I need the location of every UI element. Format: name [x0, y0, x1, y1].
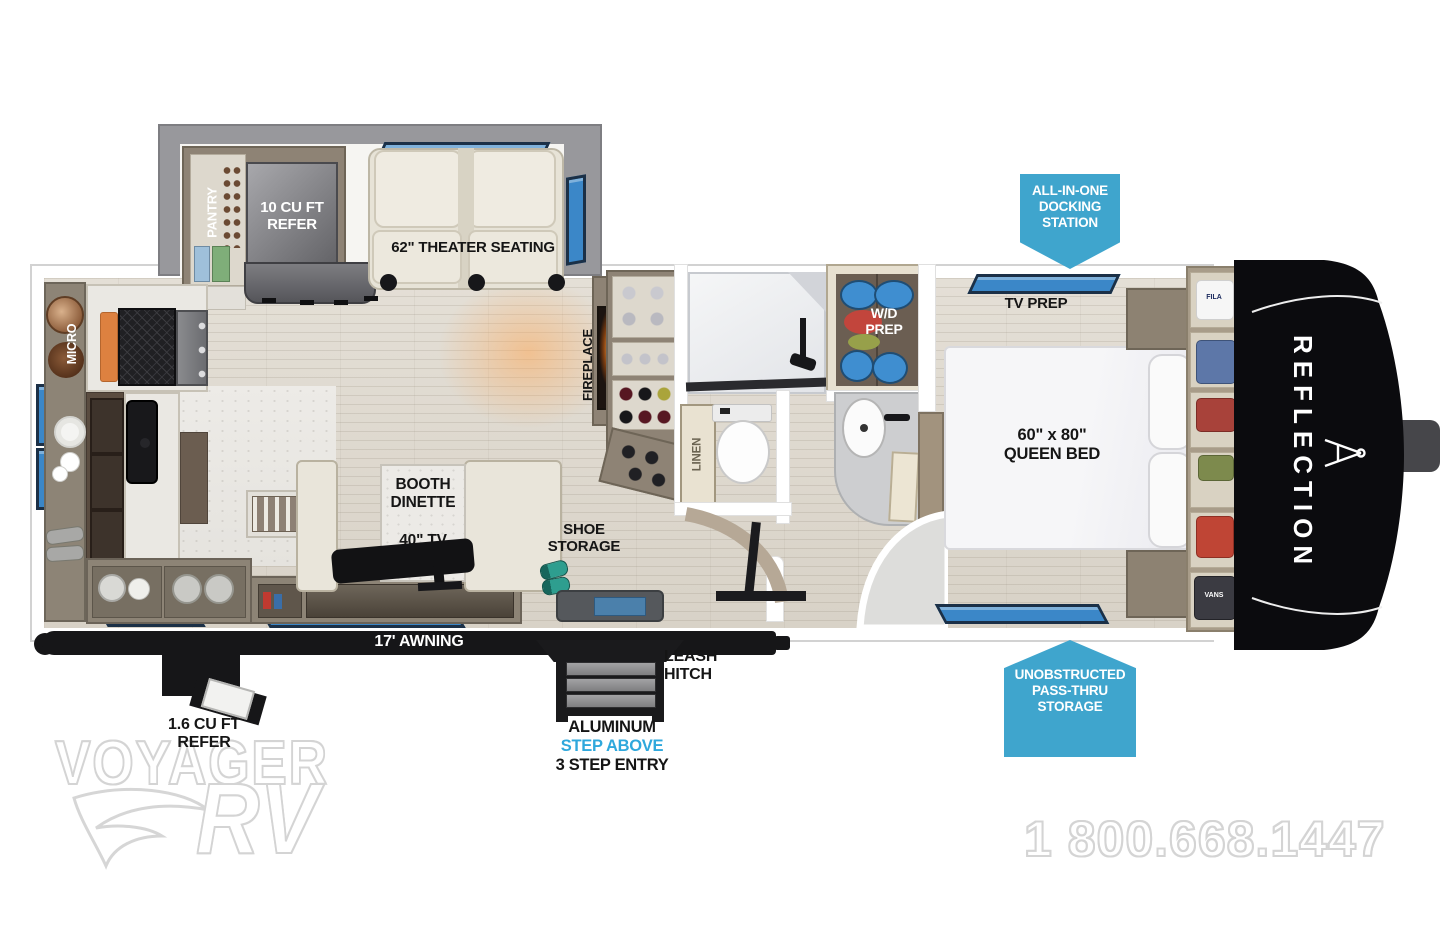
drawer-handle-3	[334, 300, 348, 305]
entry-door-mat-center	[594, 597, 646, 616]
plate-stack	[54, 416, 86, 448]
kitchen-faucet-icon	[140, 438, 150, 448]
theater-seat-back-right	[468, 150, 556, 228]
step-entry-label: 3 STEP ENTRY	[538, 756, 686, 776]
bottle-red	[263, 592, 271, 609]
bath-faucet-icon	[884, 414, 910, 421]
cabinet-door-2	[90, 454, 124, 510]
bedroom-step	[848, 510, 948, 630]
toilet	[716, 420, 770, 484]
booth-dinette-label: BOOTH DINETTE	[381, 476, 465, 520]
refrigerator-label: 10 CU FT REFER	[248, 200, 336, 240]
pantry-jars	[222, 164, 242, 248]
stemware-shelf	[612, 276, 676, 338]
exterior-refer-label: 1.6 CU FT REFER	[148, 716, 260, 756]
stove-cooktop	[118, 308, 176, 386]
laundry-blue-2	[872, 352, 908, 384]
laundry-blue	[840, 350, 874, 382]
pass-thru-storage-badge: UNOBSTRUCTED PASS-THRU STORAGE	[1004, 640, 1136, 757]
bowl-2	[52, 466, 68, 482]
step-tread-2	[566, 678, 656, 692]
exterior-refrigerator	[201, 678, 255, 720]
bottle-blue	[274, 594, 282, 609]
cabinet-door-1	[90, 398, 124, 454]
docking-station-badge: ALL-IN-ONE DOCKING STATION	[1020, 174, 1120, 269]
wd-prep-label: W/D PREP	[846, 306, 922, 344]
theater-seating-label: 62" THEATER SEATING	[378, 240, 568, 260]
rv-floorplan: VOYAGER RV 1 800.668.1447 PANTRY 10 CU F…	[0, 0, 1440, 948]
step-material-label: ALUMINUM	[538, 718, 686, 738]
step-tread-1	[566, 662, 656, 676]
tv-prep-label: TV PREP	[996, 296, 1076, 314]
compass-logo-icon	[1319, 433, 1369, 473]
step-tread-3	[566, 694, 656, 708]
recliner-foot-2	[468, 274, 485, 291]
drawer-handle-2	[300, 300, 314, 305]
cabinet-front	[180, 432, 208, 524]
dealer-phone: 1 800.668.1447	[1024, 810, 1386, 868]
toilet-flush	[720, 408, 730, 414]
utensil-tray	[252, 496, 298, 532]
dish-plate-3	[204, 574, 234, 604]
fireplace-label: FIREPLACE	[581, 323, 597, 407]
recliner-foot	[380, 274, 397, 291]
entry-door-frame	[716, 591, 806, 601]
cutting-board	[100, 312, 118, 382]
awning-label: 17' AWNING	[344, 633, 494, 653]
slideout-side-window	[566, 174, 586, 266]
shoe-storage-label: SHOE STORAGE	[546, 522, 622, 560]
dish-plate	[98, 574, 126, 602]
microwave-label: MICRO	[65, 316, 79, 372]
dinette-bench-left	[296, 460, 338, 592]
drawer-handle	[262, 298, 276, 303]
drawer-handle-4	[364, 296, 378, 301]
bedroom-window-rear	[935, 604, 1110, 624]
canister-2	[46, 545, 85, 563]
pantry-bin-2	[212, 246, 230, 282]
queen-bed-label: 60" x 80" QUEEN BED	[988, 426, 1116, 472]
nightstand-bottom	[1126, 550, 1194, 618]
linen-label: LINEN	[692, 429, 705, 481]
reflection-brand-label: REFLECTION	[1284, 335, 1318, 565]
wine-bottle-rack	[612, 380, 676, 430]
pantry-label: PANTRY	[206, 178, 221, 248]
leash-hitch-label: LEASH HITCH	[664, 648, 734, 688]
step-above-label: STEP ABOVE	[538, 737, 686, 757]
nightstand-top	[1126, 288, 1194, 350]
recliner-foot-3	[548, 274, 565, 291]
oven	[176, 310, 208, 386]
dish-bowl	[128, 578, 150, 600]
bedroom-window-front	[967, 274, 1120, 294]
awning-end-cap	[774, 636, 790, 650]
watermark-rv: RV	[196, 762, 318, 877]
dish-plate-2	[172, 574, 202, 604]
pantry-bin	[194, 246, 210, 282]
theater-seat-back-left	[374, 150, 462, 228]
sink-drain-icon	[860, 424, 868, 432]
bedroom-wall	[918, 264, 936, 412]
glass-shelf	[612, 342, 676, 376]
